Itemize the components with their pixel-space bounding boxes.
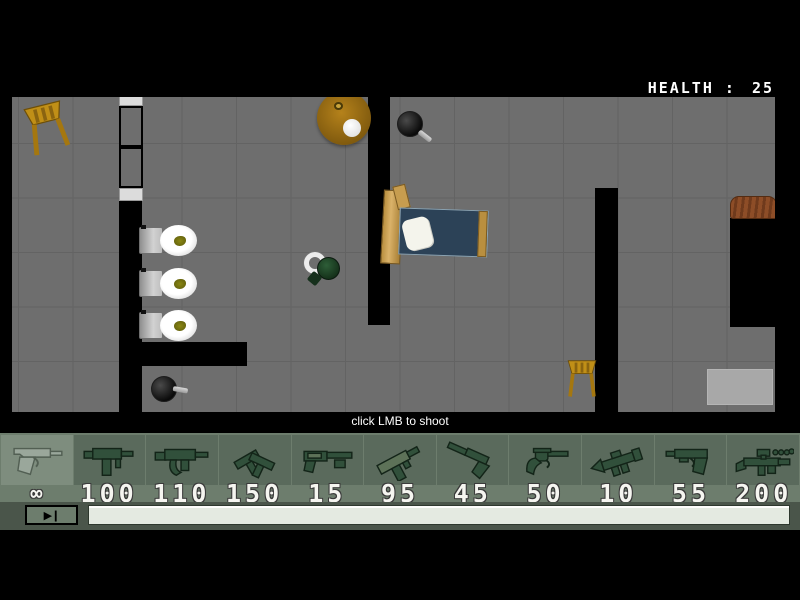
toilet-water (174, 236, 186, 246)
usp-icon (660, 439, 722, 481)
weapon-slot-scoped-rifle[interactable] (727, 435, 799, 485)
transport-bar: ▶❙ (0, 502, 800, 530)
health-display: HEALTH : 25 (648, 79, 774, 97)
silenced-pistol-icon (442, 439, 504, 481)
ammo-count-mp5: 110 (145, 484, 218, 504)
ammo-count-rocket-launcher: 10 (582, 484, 655, 504)
weapon-bar: ∞100110150159545501055200 (0, 433, 800, 502)
toilet-water (174, 279, 186, 289)
toilet (139, 268, 197, 300)
chair-graphic (16, 97, 80, 164)
wall-right-block (730, 218, 775, 327)
step-forward-icon: ▶❙ (44, 510, 60, 521)
revolver-icon (514, 439, 576, 481)
door-frame-bottom (119, 188, 143, 201)
weapon-slot-uzi[interactable] (74, 435, 146, 485)
toilet-bowl (160, 225, 197, 256)
health-label: HEALTH : (648, 79, 736, 97)
timeline-track[interactable] (88, 505, 790, 525)
round-table (317, 97, 371, 145)
mp5-icon (151, 439, 213, 481)
floor-rug (707, 369, 773, 405)
ammo-count-revolver: 50 (509, 484, 582, 504)
chair (563, 358, 601, 402)
weapon-slot-tec9[interactable] (364, 435, 436, 485)
chair (16, 97, 80, 164)
weapon-slot-pistol[interactable] (1, 435, 73, 485)
ammo-count-silenced-pistol: 45 (436, 484, 509, 504)
weapon-slot-silenced-pistol[interactable] (437, 435, 509, 485)
pan-handle (417, 130, 432, 143)
weapon-slot-revolver[interactable] (509, 435, 581, 485)
weapon-slots (0, 435, 800, 485)
toilet (139, 225, 197, 257)
ammo-count-usp: 55 (655, 484, 728, 504)
step-forward-button[interactable]: ▶❙ (25, 505, 78, 525)
ammo-count-scoped-rifle: 200 (727, 484, 800, 504)
table-item (334, 102, 343, 110)
pistol-icon (6, 439, 68, 481)
glass-door (119, 97, 143, 203)
game-screen: HEALTH : 25 (0, 0, 800, 600)
ammo-row: ∞100110150159545501055200 (0, 484, 800, 504)
door-pane (119, 106, 143, 147)
map-floor[interactable] (12, 97, 775, 412)
doormat (730, 196, 775, 219)
chair-graphic (563, 358, 601, 402)
hint-text: click LMB to shoot (0, 414, 800, 428)
weapon-slot-mp5[interactable] (146, 435, 218, 485)
pan-handle (173, 386, 189, 394)
ammo-count-uzi: 100 (73, 484, 146, 504)
weapon-slot-usp[interactable] (655, 435, 727, 485)
wall-bottom-left-horizontal (119, 342, 247, 366)
frying-pan (397, 111, 423, 137)
weapon-slot-shotgun[interactable] (292, 435, 364, 485)
toilet (139, 310, 197, 342)
scoped-rifle-icon (732, 439, 794, 481)
tec9-icon (369, 439, 431, 481)
door-frame-top (119, 97, 143, 106)
health-value: 25 (752, 79, 774, 97)
ammo-count-dual-uzis: 150 (218, 484, 291, 504)
toilet-bowl (160, 310, 197, 341)
weapon-slot-rocket-launcher[interactable] (582, 435, 654, 485)
ammo-count-tec9: 95 (364, 484, 437, 504)
rocket-launcher-icon (587, 439, 649, 481)
toilet-water (174, 321, 186, 331)
bed-footboard (477, 211, 488, 257)
dual-uzis-icon (224, 439, 286, 481)
uzi-icon (78, 439, 140, 481)
toilet-bowl (160, 268, 197, 299)
frying-pan (151, 376, 177, 402)
ammo-count-pistol: ∞ (0, 484, 73, 504)
shotgun-icon (296, 439, 358, 481)
plate (343, 119, 361, 137)
ammo-count-shotgun: 15 (291, 484, 364, 504)
door-pane (119, 147, 143, 188)
weapon-slot-dual-uzis[interactable] (219, 435, 291, 485)
